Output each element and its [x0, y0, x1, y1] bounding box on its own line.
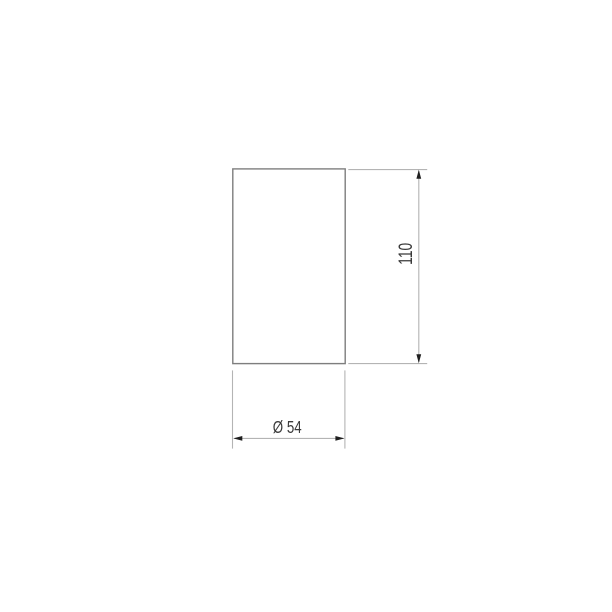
svg-text:Ø 54: Ø 54 — [273, 418, 302, 437]
svg-text:110: 110 — [395, 243, 417, 265]
